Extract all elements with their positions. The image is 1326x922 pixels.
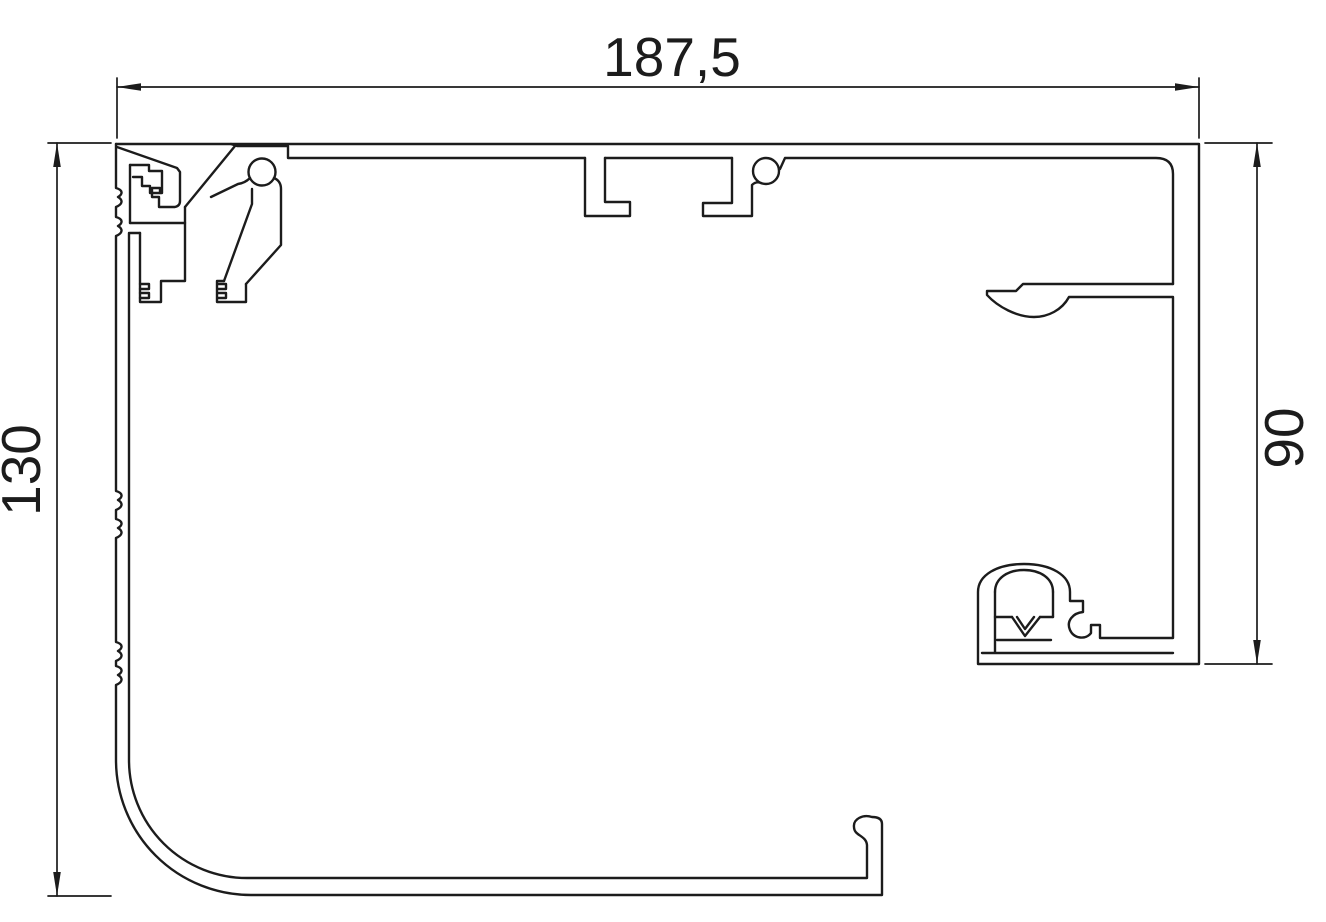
clip-pocket-diagonal <box>185 146 235 207</box>
mushroom-left-side <box>224 189 252 281</box>
shelf-lines <box>130 223 185 233</box>
dimension-height-left: 130 <box>0 143 111 896</box>
profile-outer-right-section <box>116 144 1199 664</box>
mushroom-foot <box>217 281 246 302</box>
dimension-height-right: 90 <box>1205 143 1315 664</box>
arrowhead-bottom <box>53 872 61 896</box>
arrowhead-bottom <box>1253 640 1261 664</box>
tslot-hook-left <box>585 158 630 216</box>
drawing-canvas: 187,5 130 90 <box>0 0 1326 922</box>
mushroom-head <box>249 159 276 186</box>
roller-dome-inner <box>995 570 1053 592</box>
profile-inner-ceiling-right <box>780 158 1173 284</box>
mushroom-left-ledge <box>211 178 250 197</box>
profile-inner-ceiling-left <box>231 144 585 158</box>
arrowhead-top <box>1253 143 1261 167</box>
tslot-hook-right <box>703 158 761 216</box>
arrowhead-right <box>1175 83 1199 91</box>
dimension-height-right-label: 90 <box>1253 407 1315 468</box>
arrowhead-top <box>53 143 61 167</box>
dimension-width-label: 187,5 <box>603 26 741 88</box>
roller-v-ridge <box>1012 617 1040 636</box>
screw-box-foot-notches <box>140 284 149 298</box>
extension-line <box>1205 143 1272 664</box>
roller-channel-legs <box>995 592 1053 652</box>
profile-drawing: 187,5 130 90 <box>0 0 1326 922</box>
dimension-height-left-label: 130 <box>0 424 52 516</box>
profile-outer-left-section <box>116 144 882 895</box>
arrowhead-left <box>117 83 141 91</box>
dimension-width-top: 187,5 <box>117 26 1199 138</box>
screw-box-walls <box>140 207 185 302</box>
corner-wedge-and-hook <box>117 147 180 207</box>
gasket-bulb-pocket <box>753 158 779 184</box>
